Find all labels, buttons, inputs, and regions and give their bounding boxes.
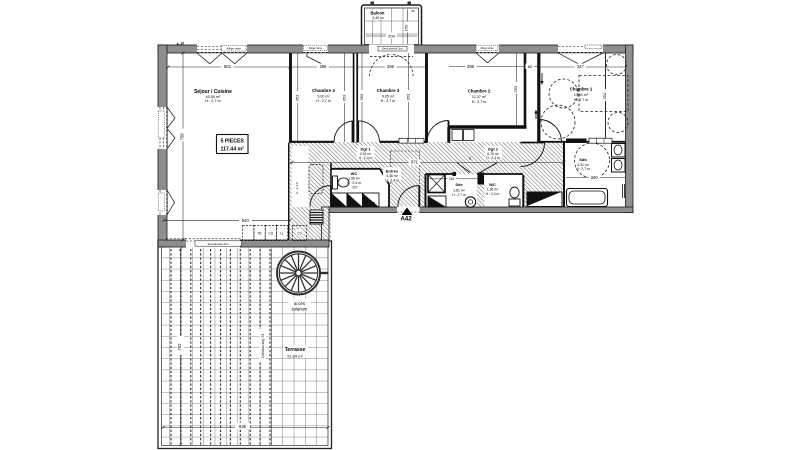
svg-text:635: 635 [239, 424, 247, 429]
svg-text:Seuil alvéolé 2cm: Seuil alvéolé 2cm [207, 242, 229, 246]
svg-text:H : 2,7 m: H : 2,7 m [576, 167, 590, 171]
svg-text:H : 2,7 m: H : 2,7 m [316, 99, 331, 103]
svg-text:LL: LL [280, 232, 284, 236]
svg-text:solarium: solarium [292, 307, 308, 312]
svg-text:540: 540 [242, 218, 250, 223]
svg-text:200: 200 [388, 34, 395, 39]
svg-text:117.44 m²: 117.44 m² [221, 146, 245, 152]
svg-text:A42: A42 [400, 216, 412, 223]
svg-text:216: 216 [449, 177, 455, 181]
svg-text:Chambre 4: Chambre 4 [312, 88, 335, 93]
svg-text:150: 150 [404, 24, 409, 31]
svg-text:Chambre 3: Chambre 3 [377, 88, 400, 93]
svg-text:Chambre 1: Chambre 1 [570, 87, 593, 92]
svg-text:353: 353 [341, 94, 346, 101]
svg-text:350: 350 [602, 92, 607, 99]
svg-text:347: 347 [577, 64, 585, 69]
svg-text:Chéneau larg. 33: Chéneau larg. 33 [261, 334, 265, 359]
svg-text:H : 2,7 m: H : 2,7 m [574, 98, 589, 102]
svg-text:H : 2,7 m: H : 2,7 m [452, 193, 466, 197]
svg-text:Dgt 2: Dgt 2 [488, 147, 499, 152]
svg-text:Terrasse: Terrasse [285, 347, 306, 353]
svg-text:9,05 m²: 9,05 m² [382, 94, 395, 98]
svg-text:TB: TB [257, 232, 261, 236]
svg-text:VR: VR [411, 9, 415, 13]
svg-text:accès: accès [294, 301, 305, 306]
svg-text:60: 60 [528, 64, 533, 69]
svg-text:CU: CU [268, 232, 273, 236]
svg-text:H : 2,4 m: H : 2,4 m [359, 156, 373, 160]
svg-text:H : 2,4 m: H : 2,4 m [295, 181, 299, 194]
svg-text:353: 353 [359, 93, 364, 100]
svg-text:▲.10: ▲.10 [176, 42, 184, 46]
svg-text:4,31 m²: 4,31 m² [577, 163, 589, 167]
svg-text:Sde: Sde [455, 182, 463, 187]
svg-text:WC: WC [489, 182, 496, 187]
svg-text:17,51 m²: 17,51 m² [574, 93, 589, 97]
svg-text:Séjour / Cuisine: Séjour / Cuisine [194, 89, 232, 95]
svg-text:Allège vitrée: Allège vitrée [480, 47, 494, 50]
svg-text:H : 2,7 m: H : 2,7 m [472, 100, 487, 104]
svg-text:WC: WC [351, 171, 358, 176]
svg-text:256: 256 [320, 64, 328, 69]
svg-text:501: 501 [224, 64, 232, 69]
svg-text:353: 353 [405, 93, 410, 100]
svg-text:H : 2,4 m: H : 2,4 m [486, 156, 500, 160]
svg-text:Balcon: Balcon [371, 10, 385, 15]
svg-text:H : 2,7 m: H : 2,7 m [381, 99, 396, 103]
svg-text:5 PIECES: 5 PIECES [221, 138, 245, 144]
svg-text:H : 2,4 m: H : 2,4 m [486, 192, 500, 196]
svg-text:Chambre 2: Chambre 2 [468, 89, 491, 94]
svg-text:762: 762 [177, 343, 182, 351]
svg-text:3,40 m²: 3,40 m² [373, 16, 385, 20]
svg-text:340: 340 [591, 175, 599, 180]
svg-text:Allège vitrée: Allège vitrée [227, 46, 242, 50]
svg-text:12,37 m²: 12,37 m² [472, 95, 487, 99]
svg-text:398: 398 [467, 64, 475, 69]
svg-text:Dgt 1: Dgt 1 [361, 147, 372, 152]
svg-text:H : 2,7 m: H : 2,7 m [205, 99, 220, 103]
svg-text:871: 871 [411, 159, 419, 164]
svg-text:26: 26 [468, 157, 472, 161]
svg-text:353: 353 [295, 94, 300, 101]
svg-text:Sdb: Sdb [579, 157, 587, 162]
svg-text:9,00 m²: 9,00 m² [317, 94, 330, 98]
svg-text:Allège vitrée: Allège vitrée [309, 47, 323, 50]
svg-text:H : 2,4 m: H : 2,4 m [385, 178, 399, 182]
svg-text:758: 758 [180, 133, 185, 141]
svg-text:91,84 m²: 91,84 m² [287, 354, 303, 359]
svg-text:207: 207 [352, 186, 358, 190]
svg-text:Entrée: Entrée [386, 169, 399, 174]
svg-text:Seuil alvéolé 2cm: Seuil alvéolé 2cm [382, 47, 404, 51]
svg-text:253: 253 [513, 85, 518, 92]
svg-text:266: 266 [387, 64, 395, 69]
svg-text:H : 2,4 m: H : 2,4 m [347, 181, 361, 185]
